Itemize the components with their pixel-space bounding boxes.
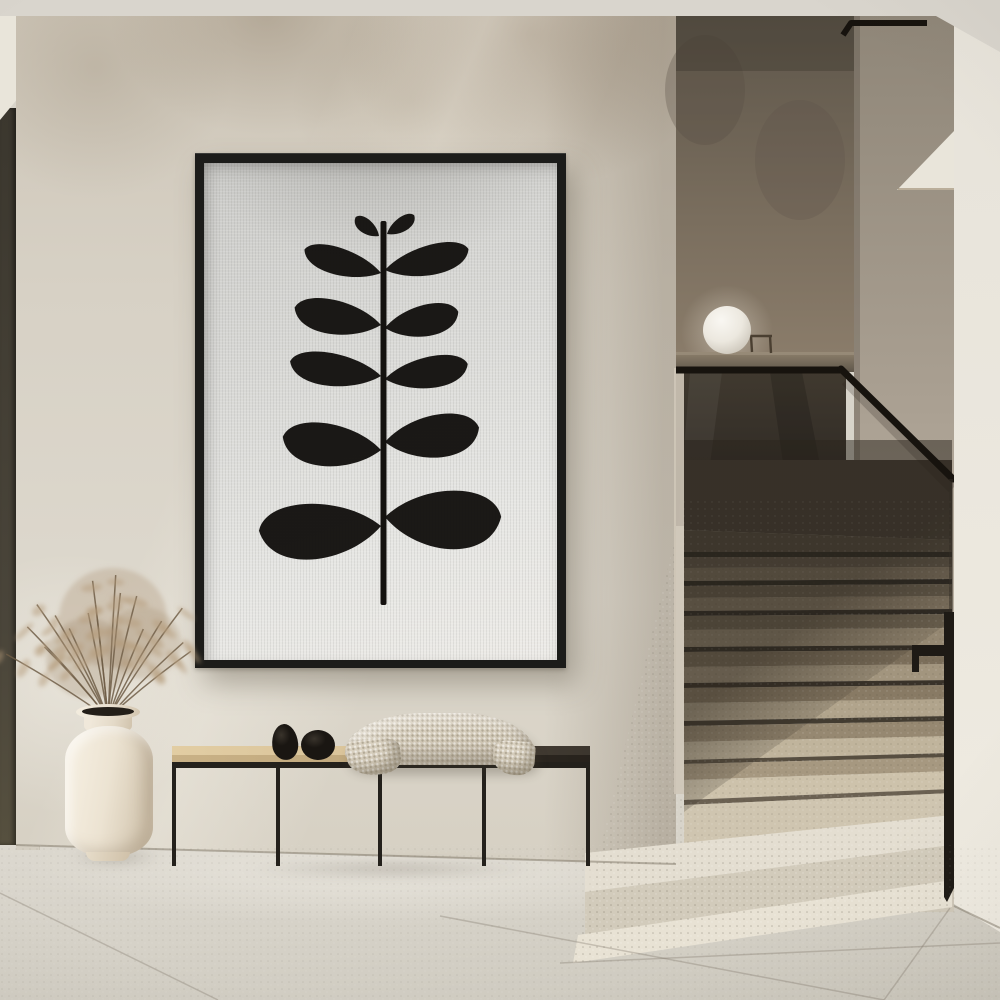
vase-rim [76, 704, 140, 720]
plant-leaf [281, 419, 383, 471]
plant-leaf [288, 348, 383, 392]
lower-handrail-cap [912, 645, 919, 672]
bench-leg [172, 768, 176, 866]
globe-lamp [703, 306, 751, 354]
plant-leaf [291, 294, 383, 342]
vase-foot [86, 852, 130, 861]
throw-fold-right [492, 740, 536, 777]
throw-fold-left [345, 736, 403, 778]
grass-plume [173, 657, 189, 675]
plant-leaf [383, 210, 419, 240]
framed-botanical-print [195, 153, 566, 668]
dried-pampas-grass [18, 533, 208, 729]
bench-leg [276, 768, 280, 866]
plant-stem [381, 221, 387, 605]
plant-leaf [383, 351, 471, 394]
plant-leaf [383, 487, 502, 552]
stairwell-jamb [674, 368, 684, 794]
plant-leaf [383, 410, 482, 463]
interior-scene [0, 0, 1000, 1000]
knit-throw [345, 713, 535, 775]
plant-leaf [351, 212, 384, 241]
ledge-highlight [676, 352, 855, 355]
grass-plume [185, 644, 203, 665]
recess-mottle [755, 100, 845, 220]
plant-leaf [382, 237, 472, 284]
foreground-bright-wall [954, 16, 1000, 932]
print-canvas [204, 163, 557, 660]
bench-leg [482, 768, 486, 866]
bench-leg [586, 768, 590, 866]
vase-opening [82, 707, 134, 716]
plant-leaf [300, 239, 384, 286]
bench-leg [378, 768, 382, 866]
ceramic-vase [65, 726, 153, 856]
grass-plume [176, 605, 196, 622]
botanical-plant-illustration [204, 163, 557, 660]
plant-leaf [257, 497, 383, 563]
recess-top-shadow [676, 16, 855, 71]
plant-leaf [382, 299, 461, 343]
